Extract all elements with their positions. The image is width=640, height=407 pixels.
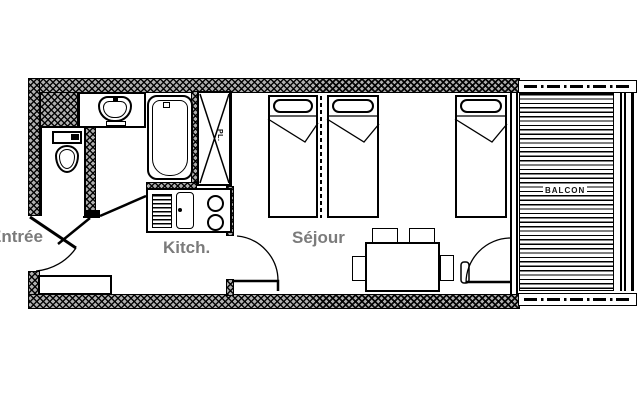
balcony-door-arc: [466, 238, 510, 283]
chair-right: [440, 255, 454, 281]
wc-door-leaf: [58, 218, 90, 244]
bed-2-pillow: [332, 99, 374, 113]
kitchen-door-arc: [237, 236, 278, 281]
hob-burner-1: [207, 195, 224, 212]
kitchen-door-leaf: [232, 281, 278, 291]
wall-wc-partition: [85, 126, 96, 214]
chair-top-left: [372, 228, 398, 243]
balcony-rail-1: [620, 93, 622, 291]
dining-table: [365, 242, 440, 292]
single-bed-3: [455, 95, 507, 218]
bed-3-pillow: [460, 99, 502, 113]
balcony-bottom-dashline: [524, 298, 632, 301]
single-bed-1: [268, 95, 318, 218]
floor-plan: Entrée Kitch. Séjour BALCON PL.: [0, 0, 640, 407]
entrance-wardrobe: [38, 275, 112, 295]
single-bed-2: [327, 95, 379, 218]
bathtub-inner: [152, 100, 188, 176]
drainer-icon: [152, 194, 172, 228]
label-kitchen: Kitch.: [163, 238, 210, 258]
bathtub-drain: [163, 102, 170, 108]
window-wall-inner: [516, 93, 518, 296]
toilet-flush-button: [71, 134, 79, 140]
bathroom-door-leaf: [100, 196, 146, 216]
balcony-rail-2: [624, 93, 626, 291]
bed-1-pillow: [273, 99, 313, 113]
hob-burner-2: [207, 214, 224, 231]
kitchen-faucet: [178, 208, 182, 212]
wall-top: [28, 78, 520, 93]
closet-pl: [197, 91, 232, 186]
balcony-rail-3: [631, 93, 634, 291]
label-living-room: Séjour: [292, 228, 345, 248]
wall-kitchen-door-stub: [226, 279, 234, 296]
wall-bottom: [28, 294, 520, 309]
window-wall-outer: [510, 93, 512, 296]
wall-alcove-side: [40, 92, 78, 128]
entrance-door-arc: [36, 248, 76, 271]
washbasin-base: [106, 121, 126, 126]
balcony-door-cap: [461, 262, 469, 283]
label-closet: PL.: [216, 129, 223, 141]
chair-left: [352, 256, 366, 281]
balcony-top-dashline: [524, 85, 632, 88]
label-balcony: BALCON: [543, 186, 587, 195]
washbasin-faucet: [113, 97, 118, 101]
label-entrance: Entrée: [0, 227, 43, 247]
wall-left-upper: [28, 78, 40, 216]
chair-top-right: [409, 228, 435, 243]
